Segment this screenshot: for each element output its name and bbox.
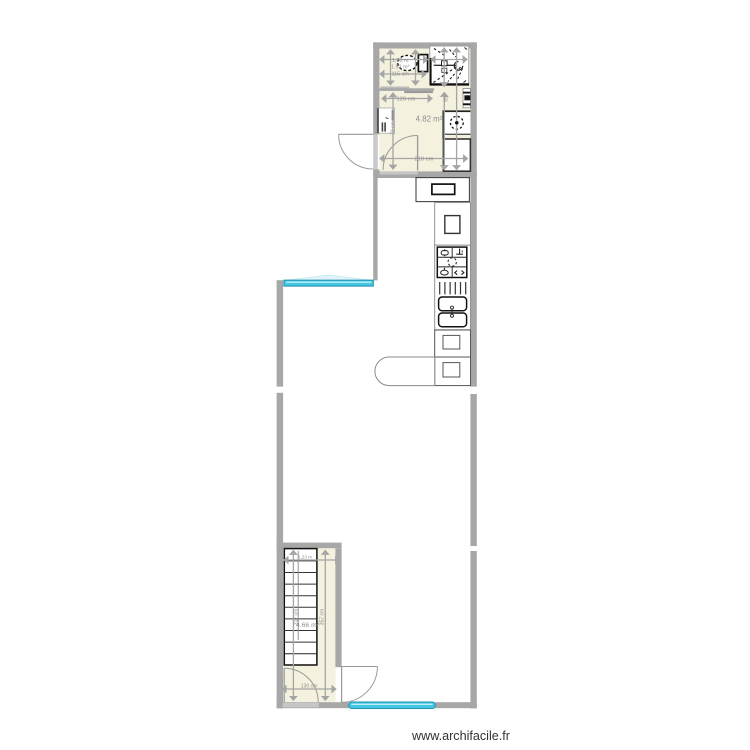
- svg-text:317 cm: 317 cm: [294, 609, 300, 625]
- svg-text:210 cm: 210 cm: [414, 156, 433, 162]
- svg-text:85: 85: [444, 96, 450, 102]
- svg-text:www.archifacile.fr: www.archifacile.fr: [411, 729, 510, 743]
- svg-text:130 cm: 130 cm: [301, 683, 317, 689]
- svg-text:357 cm: 357 cm: [320, 609, 326, 625]
- svg-text:1,23 m: 1,23 m: [298, 555, 312, 560]
- svg-text:120 cm: 120 cm: [396, 96, 415, 102]
- svg-text:79 cm: 79 cm: [391, 121, 397, 135]
- svg-text:1,50 m: 1,50 m: [392, 58, 409, 64]
- svg-text:4.82 m²: 4.82 m²: [416, 115, 443, 124]
- svg-text:115 cm: 115 cm: [392, 72, 410, 78]
- svg-text:1.52 m²: 1.52 m²: [391, 64, 409, 70]
